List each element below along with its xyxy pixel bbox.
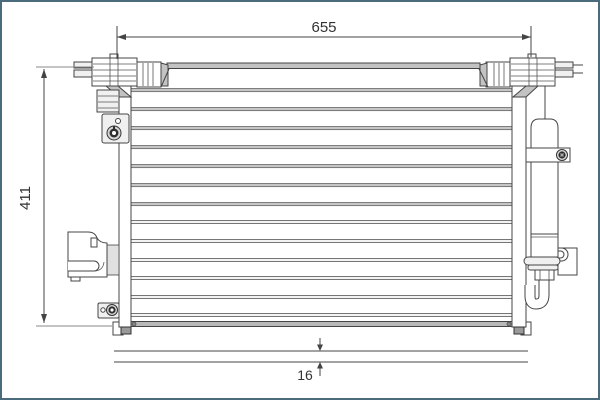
- core-bottom-bar: [129, 322, 514, 327]
- connector-block: [137, 62, 161, 87]
- condenser-technical-drawing: 655 411 16: [2, 2, 598, 398]
- bolt-fitting: [107, 305, 118, 316]
- left-prong-lower: [74, 70, 92, 77]
- bottom-bar-left-pin: [132, 322, 136, 326]
- core-background: [129, 63, 514, 326]
- mounting-bracket-left: [68, 232, 119, 281]
- dimension-depth: 16: [297, 338, 323, 383]
- bracket-body: [510, 58, 555, 86]
- drier-collar: [528, 265, 558, 270]
- right-prong-upper: [555, 62, 573, 68]
- bracket-foot: [71, 277, 80, 281]
- bottom-bar-right-pin: [507, 322, 511, 326]
- connector-block: [486, 62, 510, 87]
- drier-fitting: [535, 270, 554, 280]
- right-tank: [512, 82, 526, 334]
- small-hole: [101, 308, 105, 312]
- arrowhead-bottom: [41, 314, 47, 323]
- dimension-width: 655: [117, 19, 531, 59]
- arrowhead-down: [317, 345, 323, 352]
- right-tank-foot: [514, 327, 524, 334]
- bracket-body: [92, 58, 137, 86]
- drawing-page: 655 411 16: [0, 0, 600, 400]
- core-top-bar: [167, 63, 480, 69]
- arrowhead-up: [317, 362, 323, 369]
- receiver-drier: [524, 119, 577, 304]
- side-clip: [97, 90, 119, 112]
- arrowhead-top: [41, 69, 47, 78]
- right-prong-lower: [555, 70, 573, 77]
- left-tank-foot: [121, 327, 131, 334]
- arrowhead-left: [117, 34, 126, 40]
- bolt-fitting: [107, 126, 121, 140]
- drier-clamp: [526, 148, 570, 162]
- port-plate-lower-left: [98, 303, 119, 318]
- arrowhead-right: [522, 34, 531, 40]
- depth-dimension-label: 16: [297, 367, 313, 383]
- width-dimension-label: 655: [311, 19, 336, 36]
- depth-side-view: 16: [114, 338, 528, 383]
- port-plate-upper-left: [102, 114, 129, 143]
- drier-cylinder: [531, 119, 558, 257]
- condenser-core: [113, 63, 531, 335]
- clamp-bolt: [557, 150, 568, 161]
- drier-flange: [524, 257, 560, 265]
- drier-u-pipe: [530, 280, 544, 304]
- height-dimension-label: 411: [17, 186, 34, 210]
- bracket-hole: [91, 238, 97, 247]
- bracket-slot: [68, 261, 99, 271]
- small-hole: [116, 119, 121, 124]
